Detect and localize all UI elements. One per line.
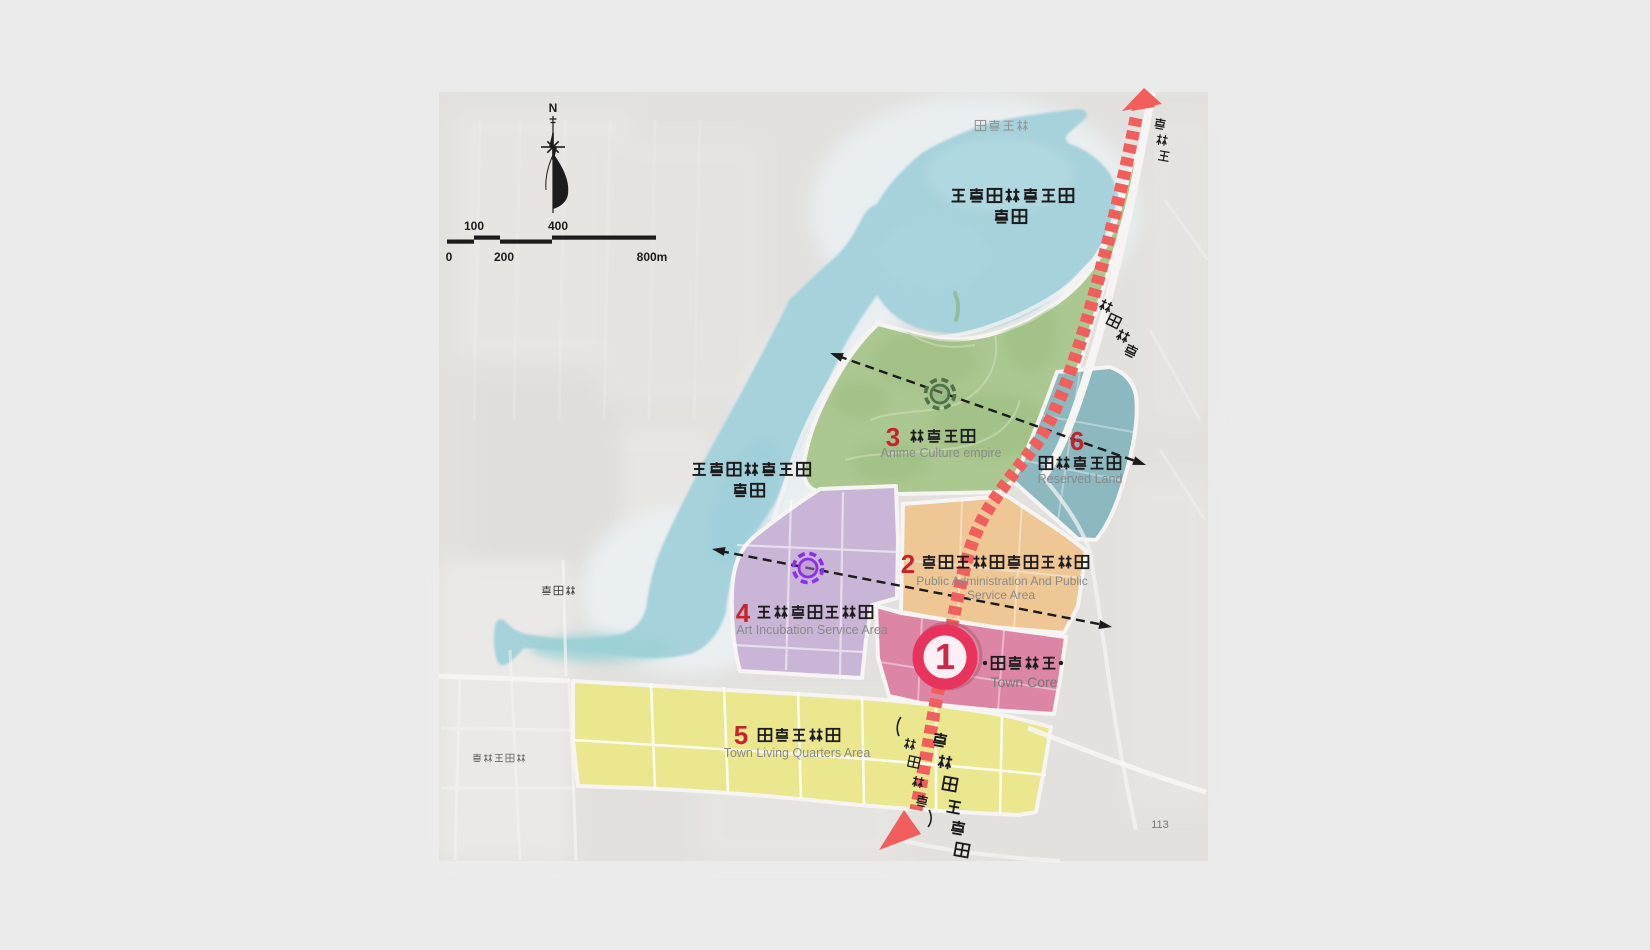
svg-text:6: 6 [1070, 426, 1084, 456]
svg-text:Reserved Land: Reserved Land [1038, 472, 1123, 486]
svg-text:Anime Culture empire: Anime Culture empire [881, 446, 1002, 460]
svg-text:100: 100 [464, 219, 484, 233]
svg-text:200: 200 [494, 250, 514, 264]
svg-text:800m: 800m [637, 250, 668, 264]
svg-text:N: N [549, 101, 558, 115]
svg-text:Public Administration And Publ: Public Administration And Public [916, 574, 1087, 588]
svg-text:Art Incubation Service Area: Art Incubation Service Area [736, 623, 888, 637]
svg-text:2: 2 [901, 549, 915, 579]
svg-text:113: 113 [1151, 819, 1169, 831]
svg-text:0: 0 [446, 250, 453, 264]
svg-text:Town Living Quarters Area: Town Living Quarters Area [724, 746, 871, 760]
svg-text:Town Core: Town Core [991, 674, 1058, 690]
svg-text:1: 1 [935, 636, 955, 677]
svg-text:400: 400 [548, 219, 568, 233]
svg-text:Service Area: Service Area [967, 588, 1035, 602]
